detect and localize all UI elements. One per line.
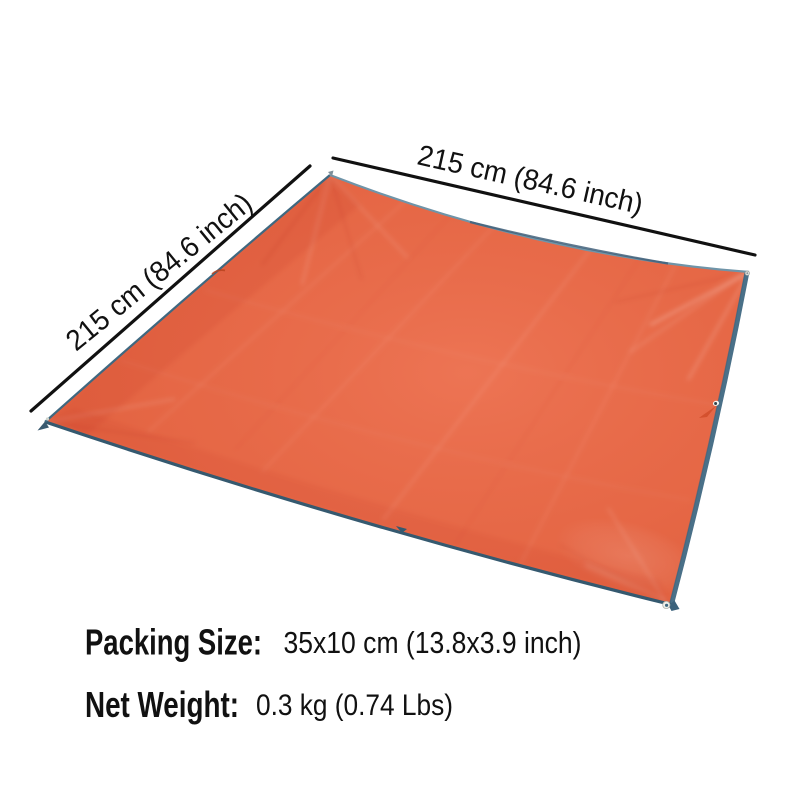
svg-text:Packing Size:: Packing Size: — [85, 622, 262, 663]
svg-text:Net Weight:: Net Weight: — [85, 684, 239, 725]
svg-text:35x10 cm (13.8x3.9 inch): 35x10 cm (13.8x3.9 inch) — [284, 626, 582, 660]
svg-text:0.3 kg (0.74 Lbs): 0.3 kg (0.74 Lbs) — [256, 689, 453, 722]
